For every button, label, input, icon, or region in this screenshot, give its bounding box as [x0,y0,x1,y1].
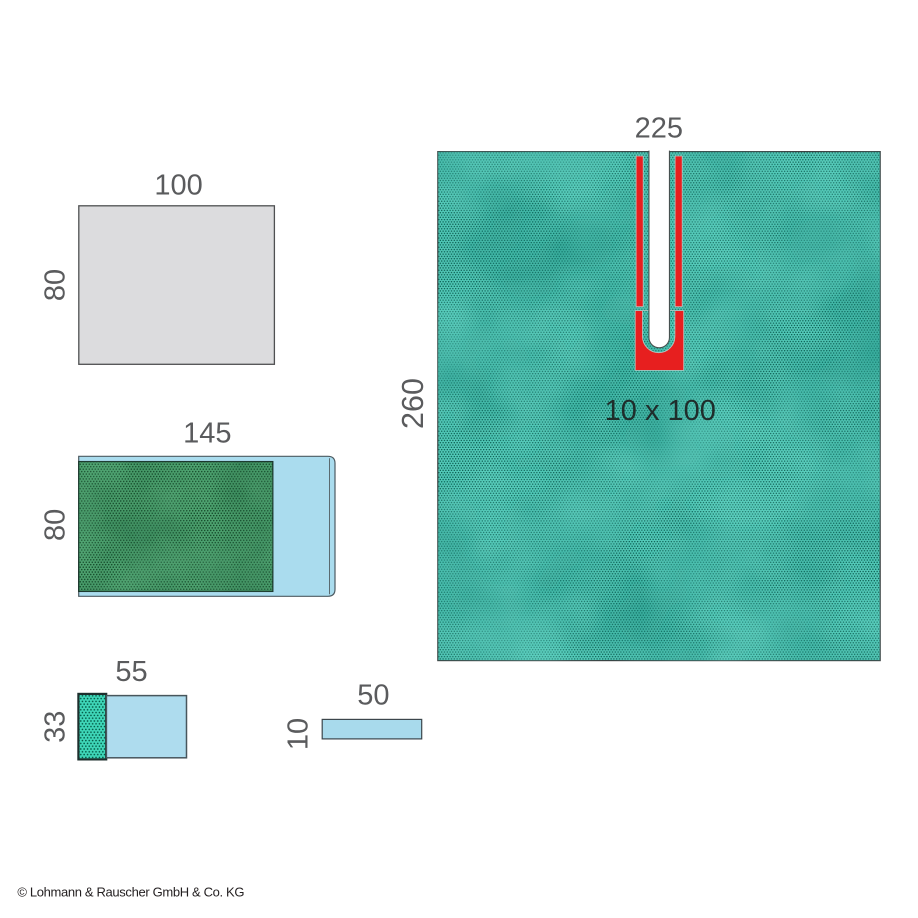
svg-text:80: 80 [40,509,72,541]
svg-text:© Lohmann & Rauscher GmbH & Co: © Lohmann & Rauscher GmbH & Co. KG [17,885,244,900]
svg-text:50: 50 [357,680,389,712]
svg-text:55: 55 [115,656,147,688]
svg-text:33: 33 [40,711,72,743]
svg-text:10 x 100: 10 x 100 [605,395,716,427]
svg-text:225: 225 [635,113,683,145]
svg-text:145: 145 [183,418,231,450]
svg-text:100: 100 [154,170,202,202]
svg-text:260: 260 [396,378,430,429]
svg-text:80: 80 [40,269,72,301]
svg-text:10: 10 [283,718,315,750]
